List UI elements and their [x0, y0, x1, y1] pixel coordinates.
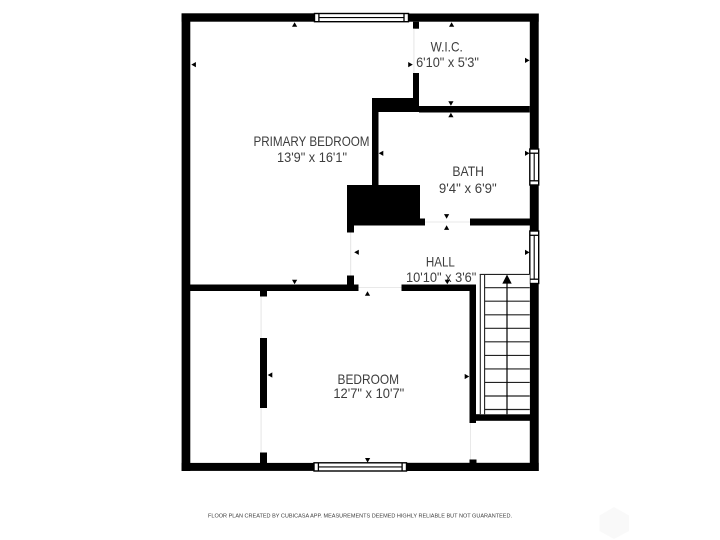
svg-text:6'10" x 5'3": 6'10" x 5'3" — [416, 55, 479, 70]
svg-text:FLOOR PLAN CREATED BY CUBICASA: FLOOR PLAN CREATED BY CUBICASA APP. MEAS… — [208, 514, 512, 520]
svg-text:PRIMARY BEDROOM: PRIMARY BEDROOM — [254, 134, 370, 149]
svg-text:10'10" x 3'6": 10'10" x 3'6" — [406, 270, 476, 285]
svg-text:HALL: HALL — [426, 254, 455, 269]
svg-text:BEDROOM: BEDROOM — [338, 372, 400, 387]
svg-text:W.I.C.: W.I.C. — [431, 39, 463, 54]
svg-text:13'9" x 16'1": 13'9" x 16'1" — [277, 150, 347, 165]
svg-text:12'7" x 10'7": 12'7" x 10'7" — [333, 386, 404, 401]
svg-text:9'4" x 6'9": 9'4" x 6'9" — [439, 181, 497, 196]
svg-text:BATH: BATH — [452, 164, 484, 179]
